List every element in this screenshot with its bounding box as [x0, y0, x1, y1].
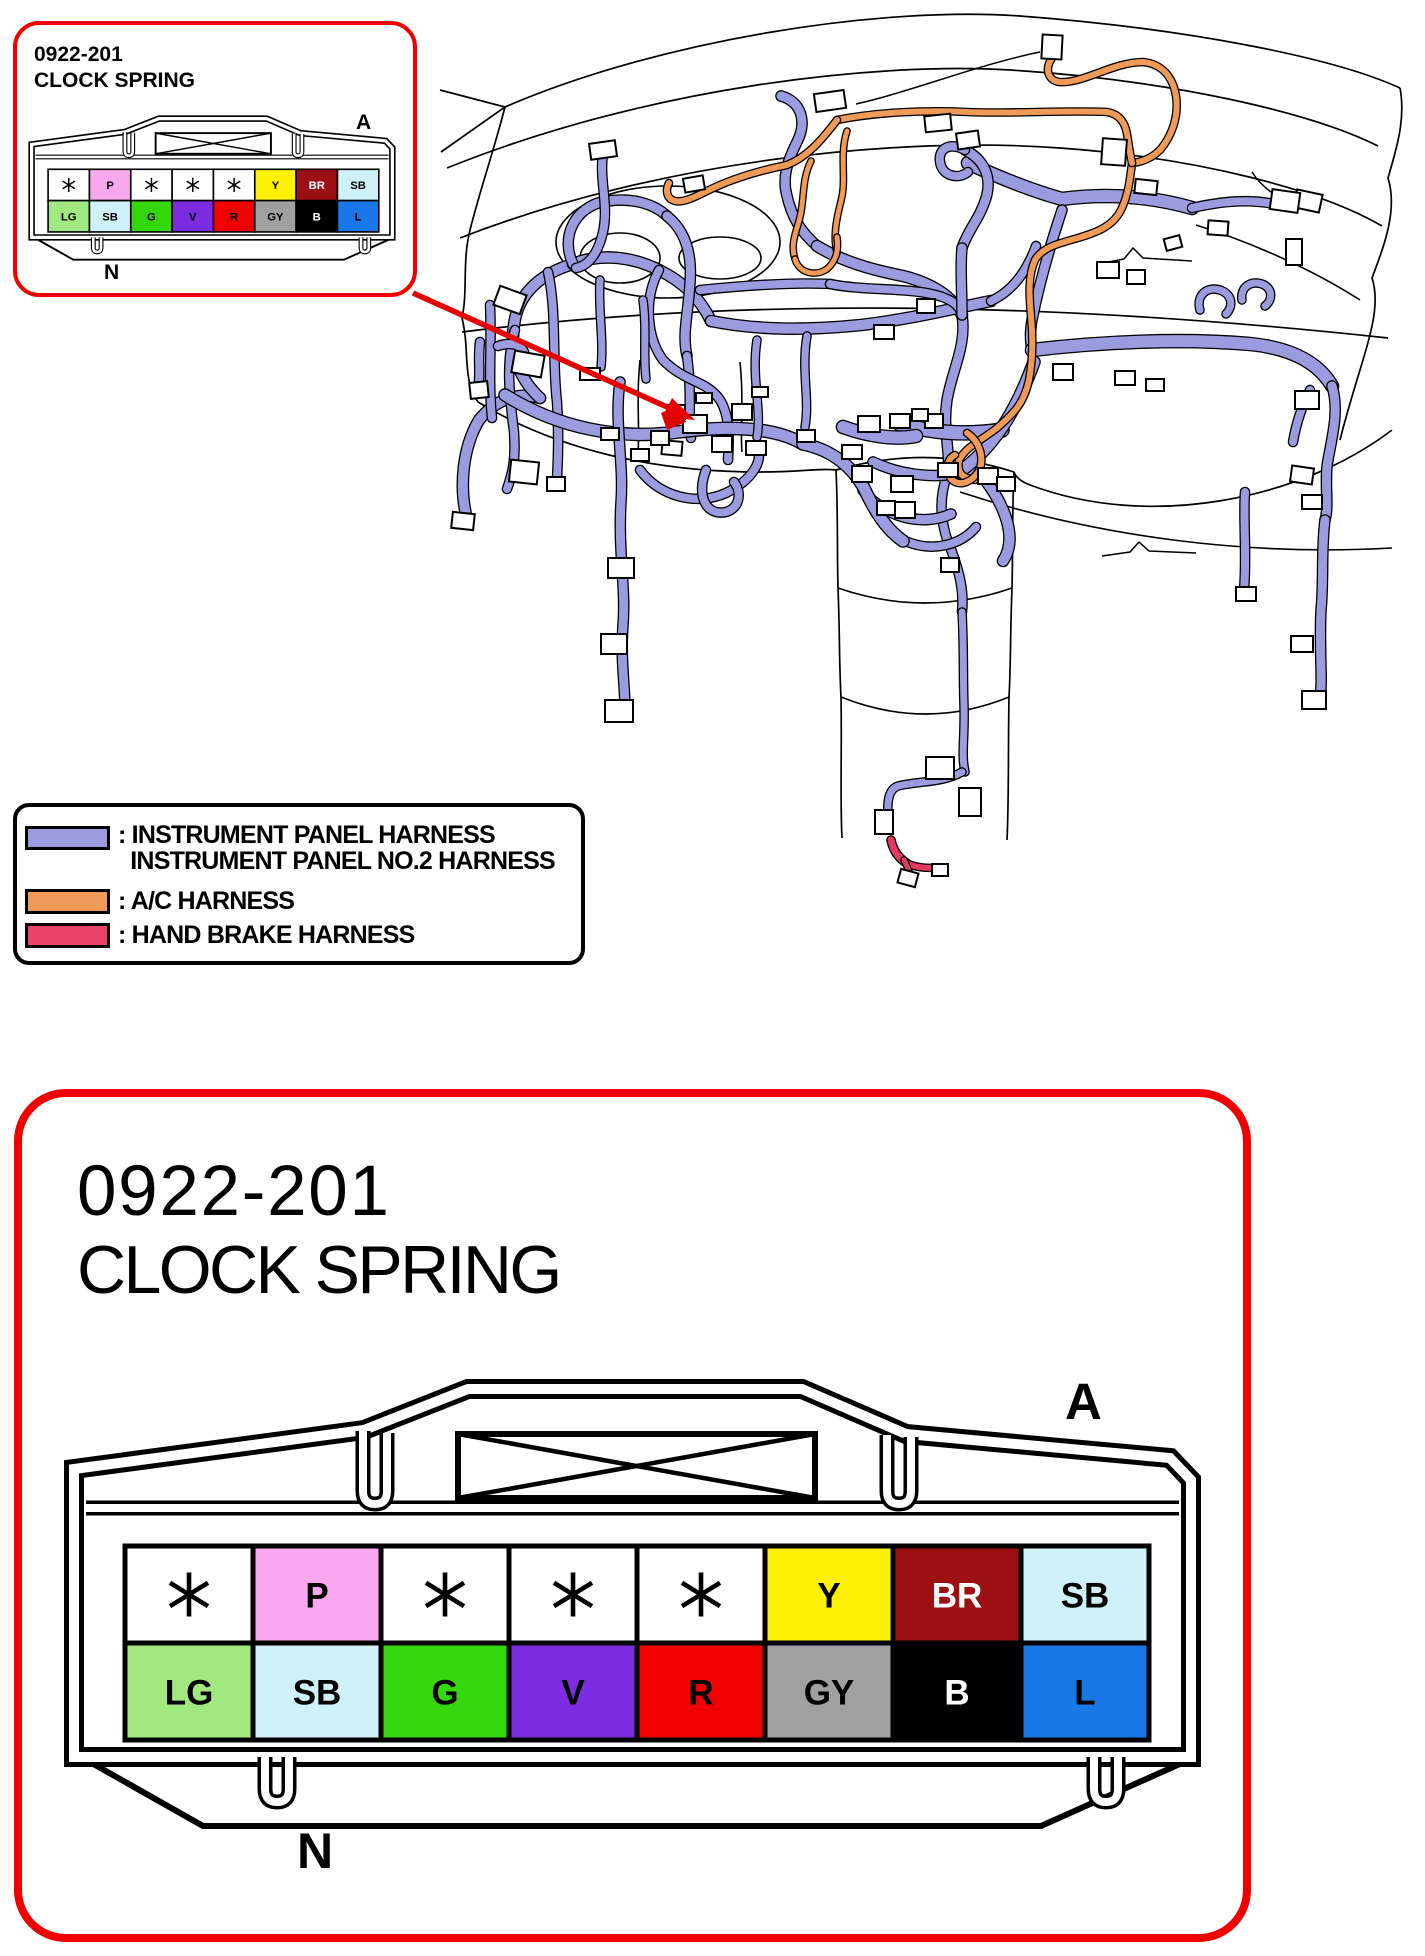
- svg-text:BR: BR: [309, 180, 325, 192]
- svg-text:LG: LG: [61, 211, 77, 223]
- svg-text:SB: SB: [293, 1674, 342, 1713]
- svg-text:L: L: [1074, 1674, 1095, 1713]
- svg-text:G: G: [431, 1674, 458, 1713]
- svg-text:SB: SB: [1061, 1577, 1110, 1616]
- svg-text:B: B: [313, 211, 321, 223]
- svg-text:B: B: [944, 1674, 969, 1713]
- svg-text:BR: BR: [932, 1577, 983, 1616]
- svg-text:LG: LG: [165, 1674, 214, 1713]
- svg-text:R: R: [688, 1674, 713, 1713]
- svg-text:L: L: [355, 211, 362, 223]
- svg-text:G: G: [147, 211, 156, 223]
- svg-text:P: P: [305, 1577, 328, 1616]
- svg-text:Y: Y: [272, 180, 280, 192]
- svg-text:R: R: [230, 211, 238, 223]
- svg-text:V: V: [561, 1674, 585, 1713]
- svg-text:V: V: [189, 211, 197, 223]
- svg-text:SB: SB: [102, 211, 118, 223]
- svg-text:GY: GY: [804, 1674, 855, 1713]
- svg-text:GY: GY: [267, 211, 284, 223]
- svg-text:SB: SB: [350, 180, 366, 192]
- svg-text:Y: Y: [817, 1577, 840, 1616]
- svg-text:P: P: [106, 180, 114, 192]
